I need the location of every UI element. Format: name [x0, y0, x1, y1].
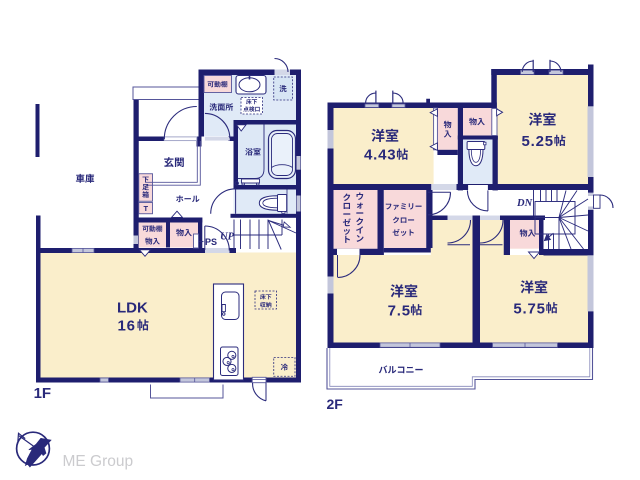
svg-text:7.5: 7.5 — [388, 302, 411, 319]
svg-text:2F: 2F — [327, 396, 344, 412]
svg-text:1F: 1F — [34, 385, 52, 402]
svg-text:UP: UP — [220, 231, 235, 242]
svg-text:LDK: LDK — [117, 299, 148, 316]
svg-text:DN: DN — [516, 198, 533, 209]
svg-text:T: T — [144, 204, 149, 213]
svg-text:5.75: 5.75 — [513, 300, 545, 317]
svg-text:4.43: 4.43 — [364, 147, 396, 164]
svg-text:PS: PS — [205, 237, 217, 247]
svg-text:ME Group: ME Group — [63, 453, 134, 470]
svg-text:16: 16 — [118, 318, 136, 335]
svg-text:5.25: 5.25 — [522, 133, 554, 150]
